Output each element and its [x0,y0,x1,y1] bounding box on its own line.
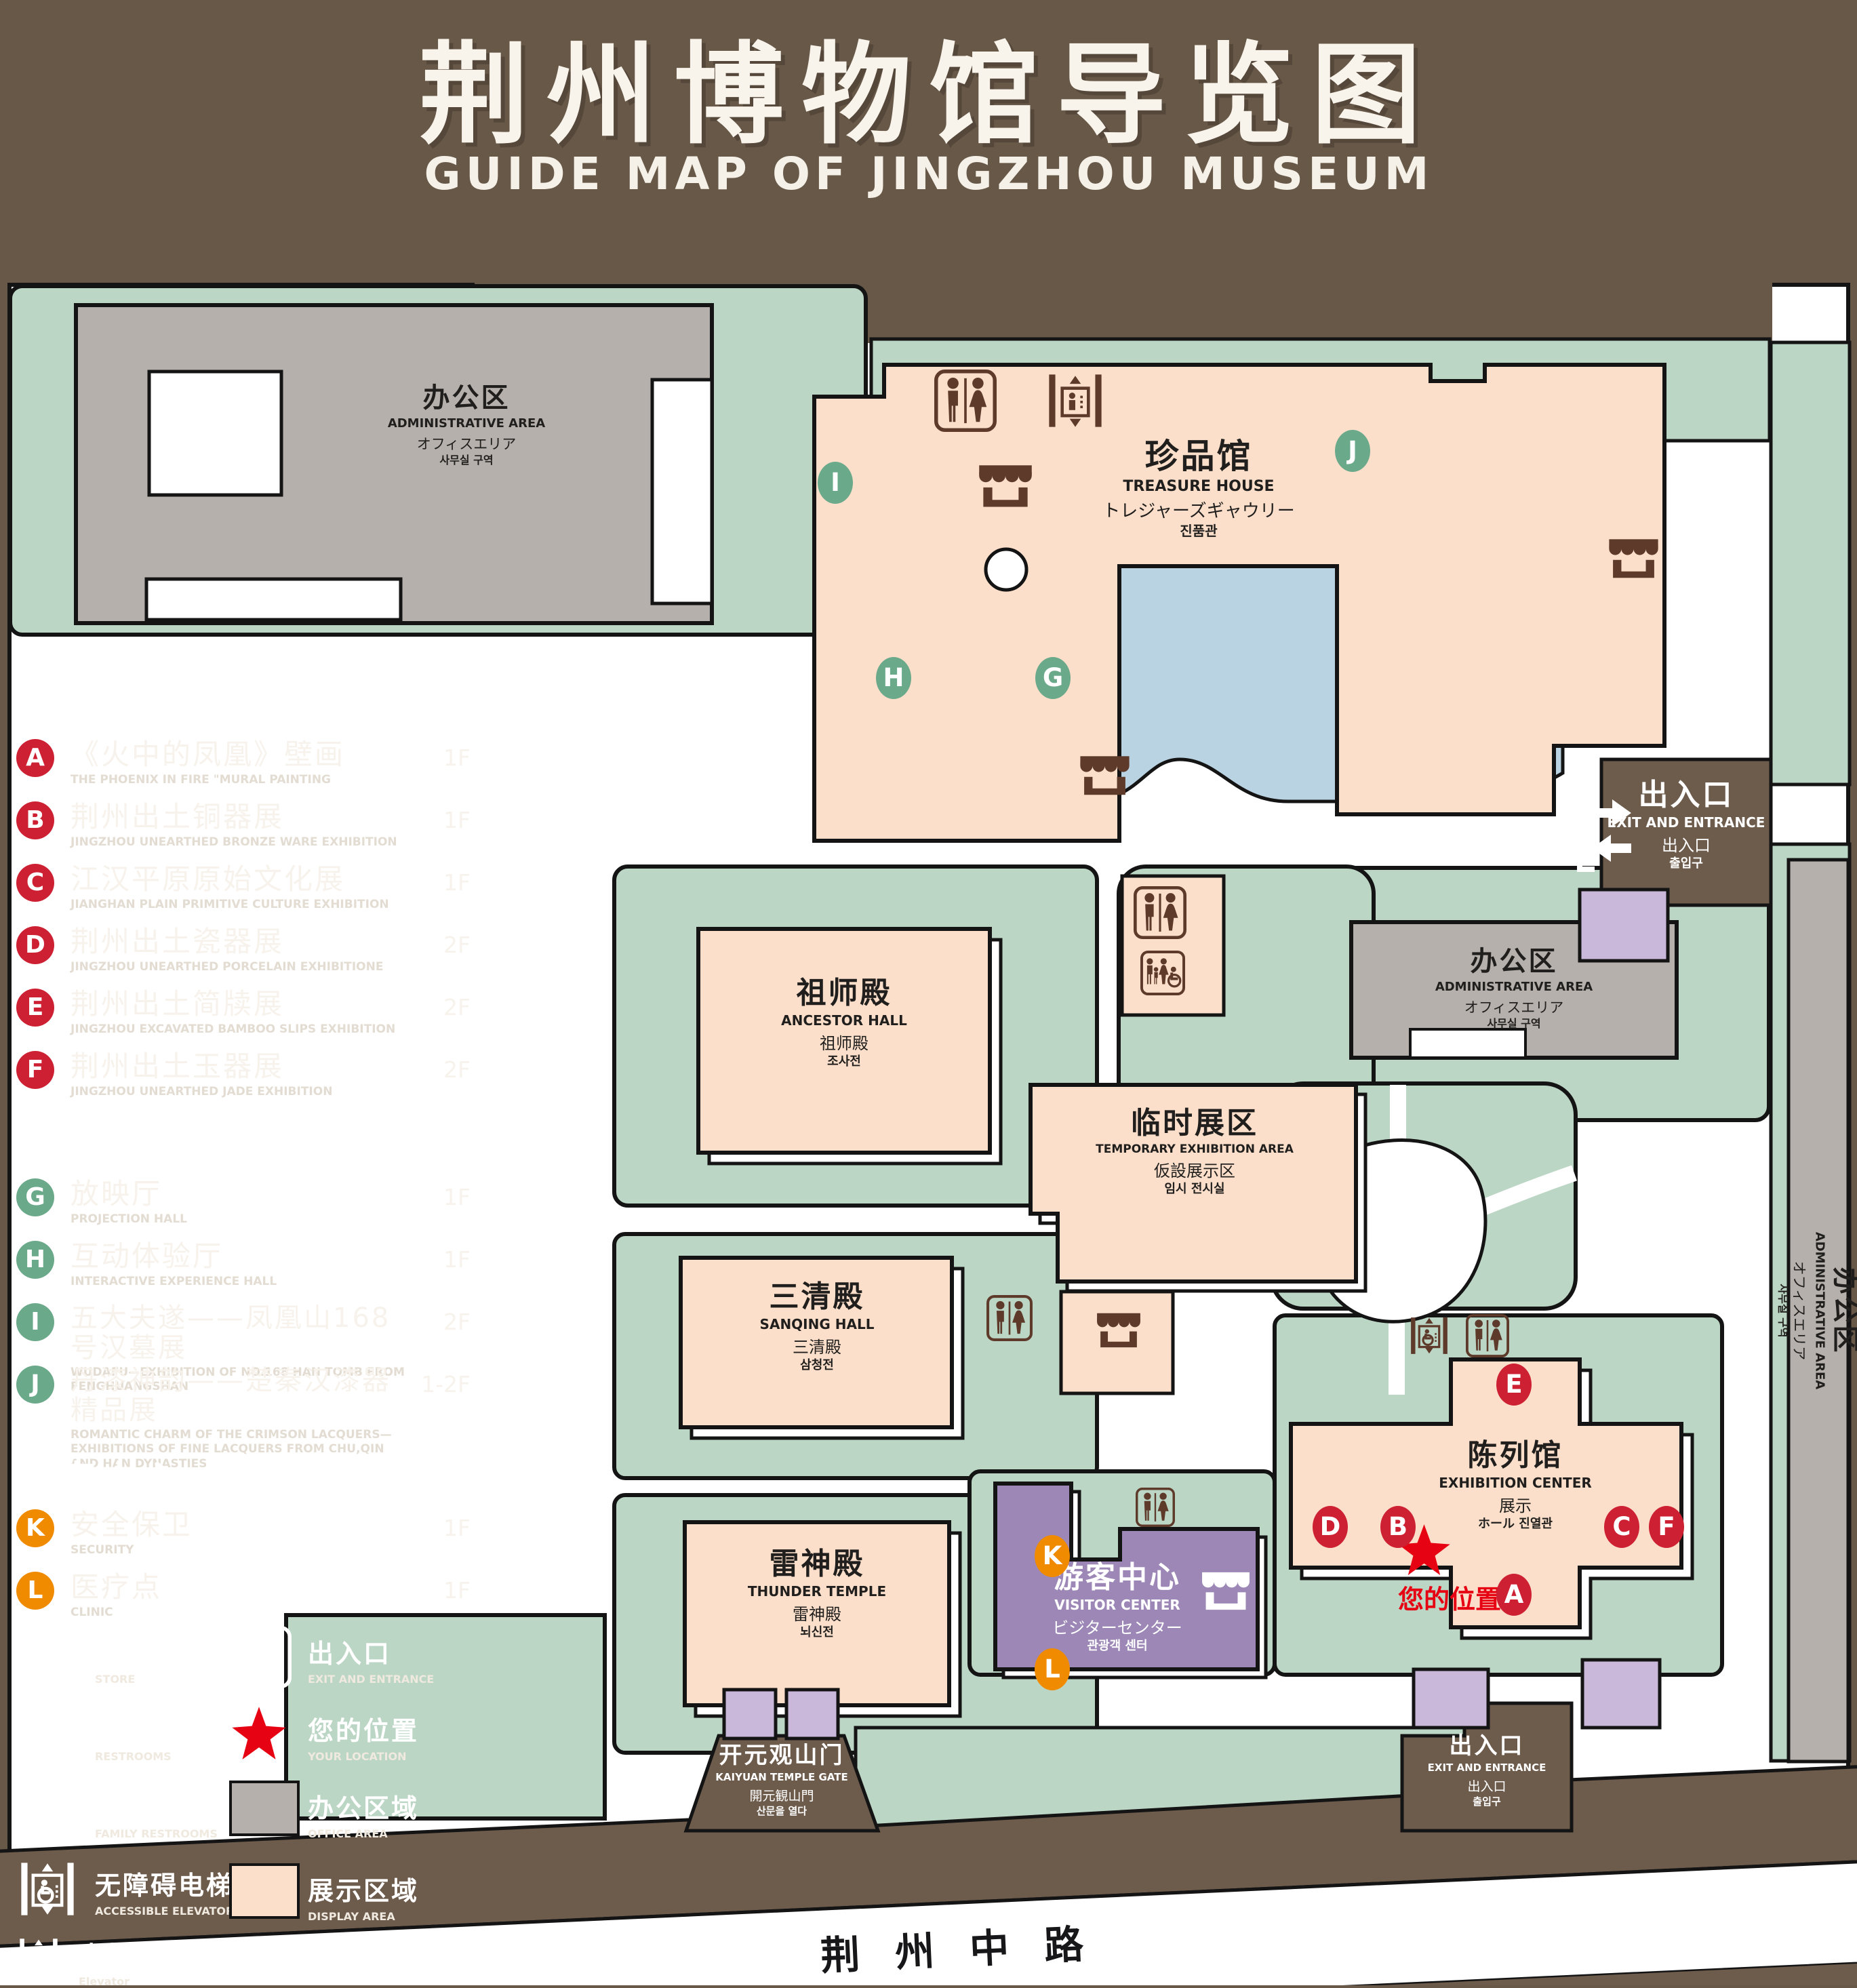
admin-courtyard-west [149,372,281,495]
display-swatch [229,1863,300,1919]
facility-en: Elevator [79,1975,134,1988]
legend-section-exhibition: 陈列馆EXHIBITION CENTER [16,675,471,730]
item-zh: 荆州出土简牍展 [71,989,416,1020]
map-marker-I: I [818,462,853,504]
item-en: CLINIC [71,1606,416,1620]
item-zh: 五大夫遂——凤凰山168号汉墓展 [71,1303,416,1363]
facility-en: RESTROOMS [95,1750,178,1763]
legend-item-C: C 江汉平原原始文化展JIANGHAN PLAIN PRIMITIVE CULT… [16,864,471,912]
facility-zh: 无障碍电梯 [95,1865,234,1902]
lawn-northeast-column [1771,342,1850,784]
symbol-en: OFFICE AREA [308,1827,419,1840]
legend-item-D: D 荆州出土瓷器展JINGZHOU UNEARTHED PORCELAIN EX… [16,926,471,974]
item-zh: 江汉平原原始文化展 [71,864,416,895]
item-en: JINGZHOU UNEARTHED BRONZE WARE EXHIBITIO… [71,835,416,850]
legend-item-H: H 互动体验厅INTERACTIVE EXPERIENCE HALL 1F [16,1241,471,1289]
office-swatch [229,1781,300,1836]
marker-badge-B: B [16,801,54,839]
map-marker-E: E [1496,1364,1532,1406]
section-title-en: TREASURE HOUSE [165,1136,439,1165]
symbol-zh: 出入口 [308,1633,434,1670]
legend-item-L: L 医疗点CLINIC 1F [16,1572,471,1620]
item-zh: 《火中的凤凰》壁画 [71,739,416,770]
label-admin-strip: 办公区ADMINISTRATIVE AREA オフィスエリア사무실 구역 [1776,1232,1857,1389]
marker-badge-L: L [16,1572,54,1610]
exit-icon [229,1626,292,1688]
label-ancestor-hall: 祖师殿ANCESTOR HALL 祖师殿조사전 [781,976,907,1069]
map-marker-G: G [1035,657,1071,699]
marker-badge-H: H [16,1241,54,1279]
lavender-gate-east [786,1690,838,1738]
label-admin-northwest: 办公区ADMINISTRATIVE AREA オフィスエリア사무실 구역 [388,383,545,466]
guide-map-poster: 荆州博物馆导览图 GUIDE MAP OF JINGZHOU MUSEUM [0,0,1857,1985]
location-star-icon [229,1703,289,1763]
item-floor: 1F [443,1577,471,1604]
lavender-south-west [1414,1669,1488,1728]
label-visitor-center: 游客中心VISITOR CENTER ビジターセンター관광객 센터 [1052,1561,1182,1653]
item-en: JINGZHOU UNEARTHED PORCELAIN EXHIBITIONE [71,960,416,974]
item-floor: 2F [443,994,471,1020]
label-kaiyuan-gate: 开元观山门KAIYUAN TEMPLE GATE 開元観山門산문을 열다 [715,1743,847,1817]
legend-section-visitor: 游客中心VISITOR CENTER [16,1450,459,1505]
item-floor: 1F [443,1246,471,1273]
admin-courtyard-east [652,380,712,603]
facility-en: ACCESSIBLE ELEVATOR [95,1905,234,1917]
item-floor: 2F [443,1056,471,1083]
item-zh: 互动体验厅 [71,1241,416,1272]
lavender-gate-west [724,1690,776,1738]
facility-zh: 电梯 [79,1935,134,1972]
legend-item-K: K 安全保卫SECURITY 1F [16,1509,471,1557]
item-zh: 医疗点 [71,1572,416,1603]
marker-badge-A: A [16,739,54,777]
item-floor: 1F [443,807,471,833]
label-exit-south: 出入口EXIT AND ENTRANCE 出入口출입구 [1428,1733,1546,1808]
store-icon [16,1626,81,1686]
symbol-zh: 您的位置 [308,1710,419,1747]
label-your-location: 您的位置 [1398,1578,1501,1616]
legend-item-B: B 荆州出土铜器展JINGZHOU UNEARTHED BRONZE WARE … [16,801,471,850]
item-en: JINGZHOU UNEARTHED JADE EXHIBITION [71,1085,416,1099]
item-zh: 荆州出土瓷器展 [71,926,416,957]
item-floor: 1F [443,1515,471,1541]
treasure-court-circle [986,549,1026,590]
family-restroom-icon [16,1781,79,1843]
symbol-en: DISPLAY AREA [308,1910,419,1923]
facility-en: STORE [95,1673,206,1686]
item-zh: 荆州出土玉器展 [71,1051,416,1082]
legend-section-treasure: 珍品馆TREASURE HOUSE [16,1115,439,1170]
marker-badge-K: K [16,1509,54,1547]
marker-badge-G: G [16,1178,54,1216]
item-floor: 1F [443,744,471,771]
facility-zh: 文创商店 [95,1633,206,1670]
label-sanqing-hall: 三清殿SANQING HALL 三清殿삼청전 [760,1280,875,1372]
item-en: SECURITY [71,1543,416,1557]
facility-zh: 家庭卫生间 [95,1787,234,1825]
item-zh: 荆州出土铜器展 [71,801,416,833]
item-zh: 丹漆神韵——楚秦汉漆器精品展 [71,1366,416,1425]
section-title-zh: 珍品馆 [16,1124,142,1168]
item-floor: 1F [443,869,471,896]
symbol-en: EXIT AND ENTRANCE [308,1673,434,1686]
item-floor: 2F [443,932,471,958]
label-treasure-house: 珍品馆TREASURE HOUSE トレジャーズギャウリー진품관 [1102,437,1294,538]
map-marker-D: D [1313,1506,1348,1548]
map-marker-C: C [1604,1506,1639,1548]
section-title-en: VISITOR CENTER [207,1470,459,1499]
accessible-elevator-icon [16,1858,79,1920]
marker-badge-D: D [16,926,54,964]
item-floor: 2F [443,1309,471,1335]
restroom-icon [16,1703,79,1766]
map-marker-H: H [876,657,911,699]
section-title-zh: 陈列馆 [16,683,142,728]
legend-item-F: F 荆州出土玉器展JINGZHOU UNEARTHED JADE EXHIBIT… [16,1051,471,1099]
item-floor: 1F [443,1184,471,1210]
admin-east-notch [1410,1029,1525,1058]
lavender-south-east [1582,1660,1660,1728]
marker-badge-E: E [16,989,54,1027]
symbol-zh: 展示区域 [308,1870,419,1907]
label-admin-east: 办公区ADMINISTRATIVE AREA オフィスエリア사무실 구역 [1435,947,1593,1030]
symbol-zh: 办公区域 [308,1787,419,1825]
marker-badge-J: J [16,1366,54,1404]
marker-badge-C: C [16,864,54,902]
map-marker-F: F [1649,1506,1684,1548]
item-en: THE PHOENIX IN FIRE "MURAL PAINTING [71,773,416,787]
item-zh: 放映厅 [71,1178,416,1210]
label-temporary-exhibition: 临时展区TEMPORARY EXHIBITION AREA 仮設展示区임시 전시… [1096,1107,1294,1196]
item-en: PROJECTION HALL [71,1212,416,1227]
marker-badge-I: I [16,1303,54,1341]
marker-badge-F: F [16,1051,54,1089]
legend-item-G: G 放映厅PROJECTION HALL 1F [16,1178,471,1227]
map-marker-J: J [1335,430,1370,472]
legend-item-A: A 《火中的凤凰》壁画THE PHOENIX IN FIRE "MURAL PA… [16,739,471,787]
admin-south-slab [146,579,401,620]
item-en: JIANGHAN PLAIN PRIMITIVE CULTURE EXHIBIT… [71,898,416,912]
label-exit-northeast: 出入口EXIT AND ENTRANCE 出入口출입구 [1608,778,1765,871]
elevator-icon [16,1935,61,1980]
label-exhibition-center: 陈列馆EXHIBITION CENTER 展示ホール 진열관 [1439,1439,1592,1531]
item-floor: 1-2F [421,1371,471,1397]
map-marker-B: B [1380,1506,1416,1548]
symbol-en: YOUR LOCATION [308,1750,419,1763]
item-en: INTERACTIVE EXPERIENCE HALL [71,1275,416,1289]
section-title-zh: 游客中心 [16,1458,184,1503]
map-marker-A: A [1496,1574,1532,1616]
facility-zh: 卫生间 [95,1710,178,1747]
item-en: JINGZHOU EXCAVATED BAMBOO SLIPS EXHIBITI… [71,1022,416,1037]
item-zh: 安全保卫 [71,1509,416,1540]
map-marker-K: K [1035,1535,1070,1577]
label-thunder-temple: 雷神殿THUNDER TEMPLE 雷神殿뇌신전 [748,1547,886,1639]
map-marker-L: L [1035,1648,1070,1690]
facility-en: FAMILY RESTROOMS [95,1827,234,1840]
legend-item-E: E 荆州出土简牍展JINGZHOU EXCAVATED BAMBOO SLIPS… [16,989,471,1037]
section-title-en: EXHIBITION CENTER [165,695,471,724]
lavender-block-northeast [1580,890,1668,961]
